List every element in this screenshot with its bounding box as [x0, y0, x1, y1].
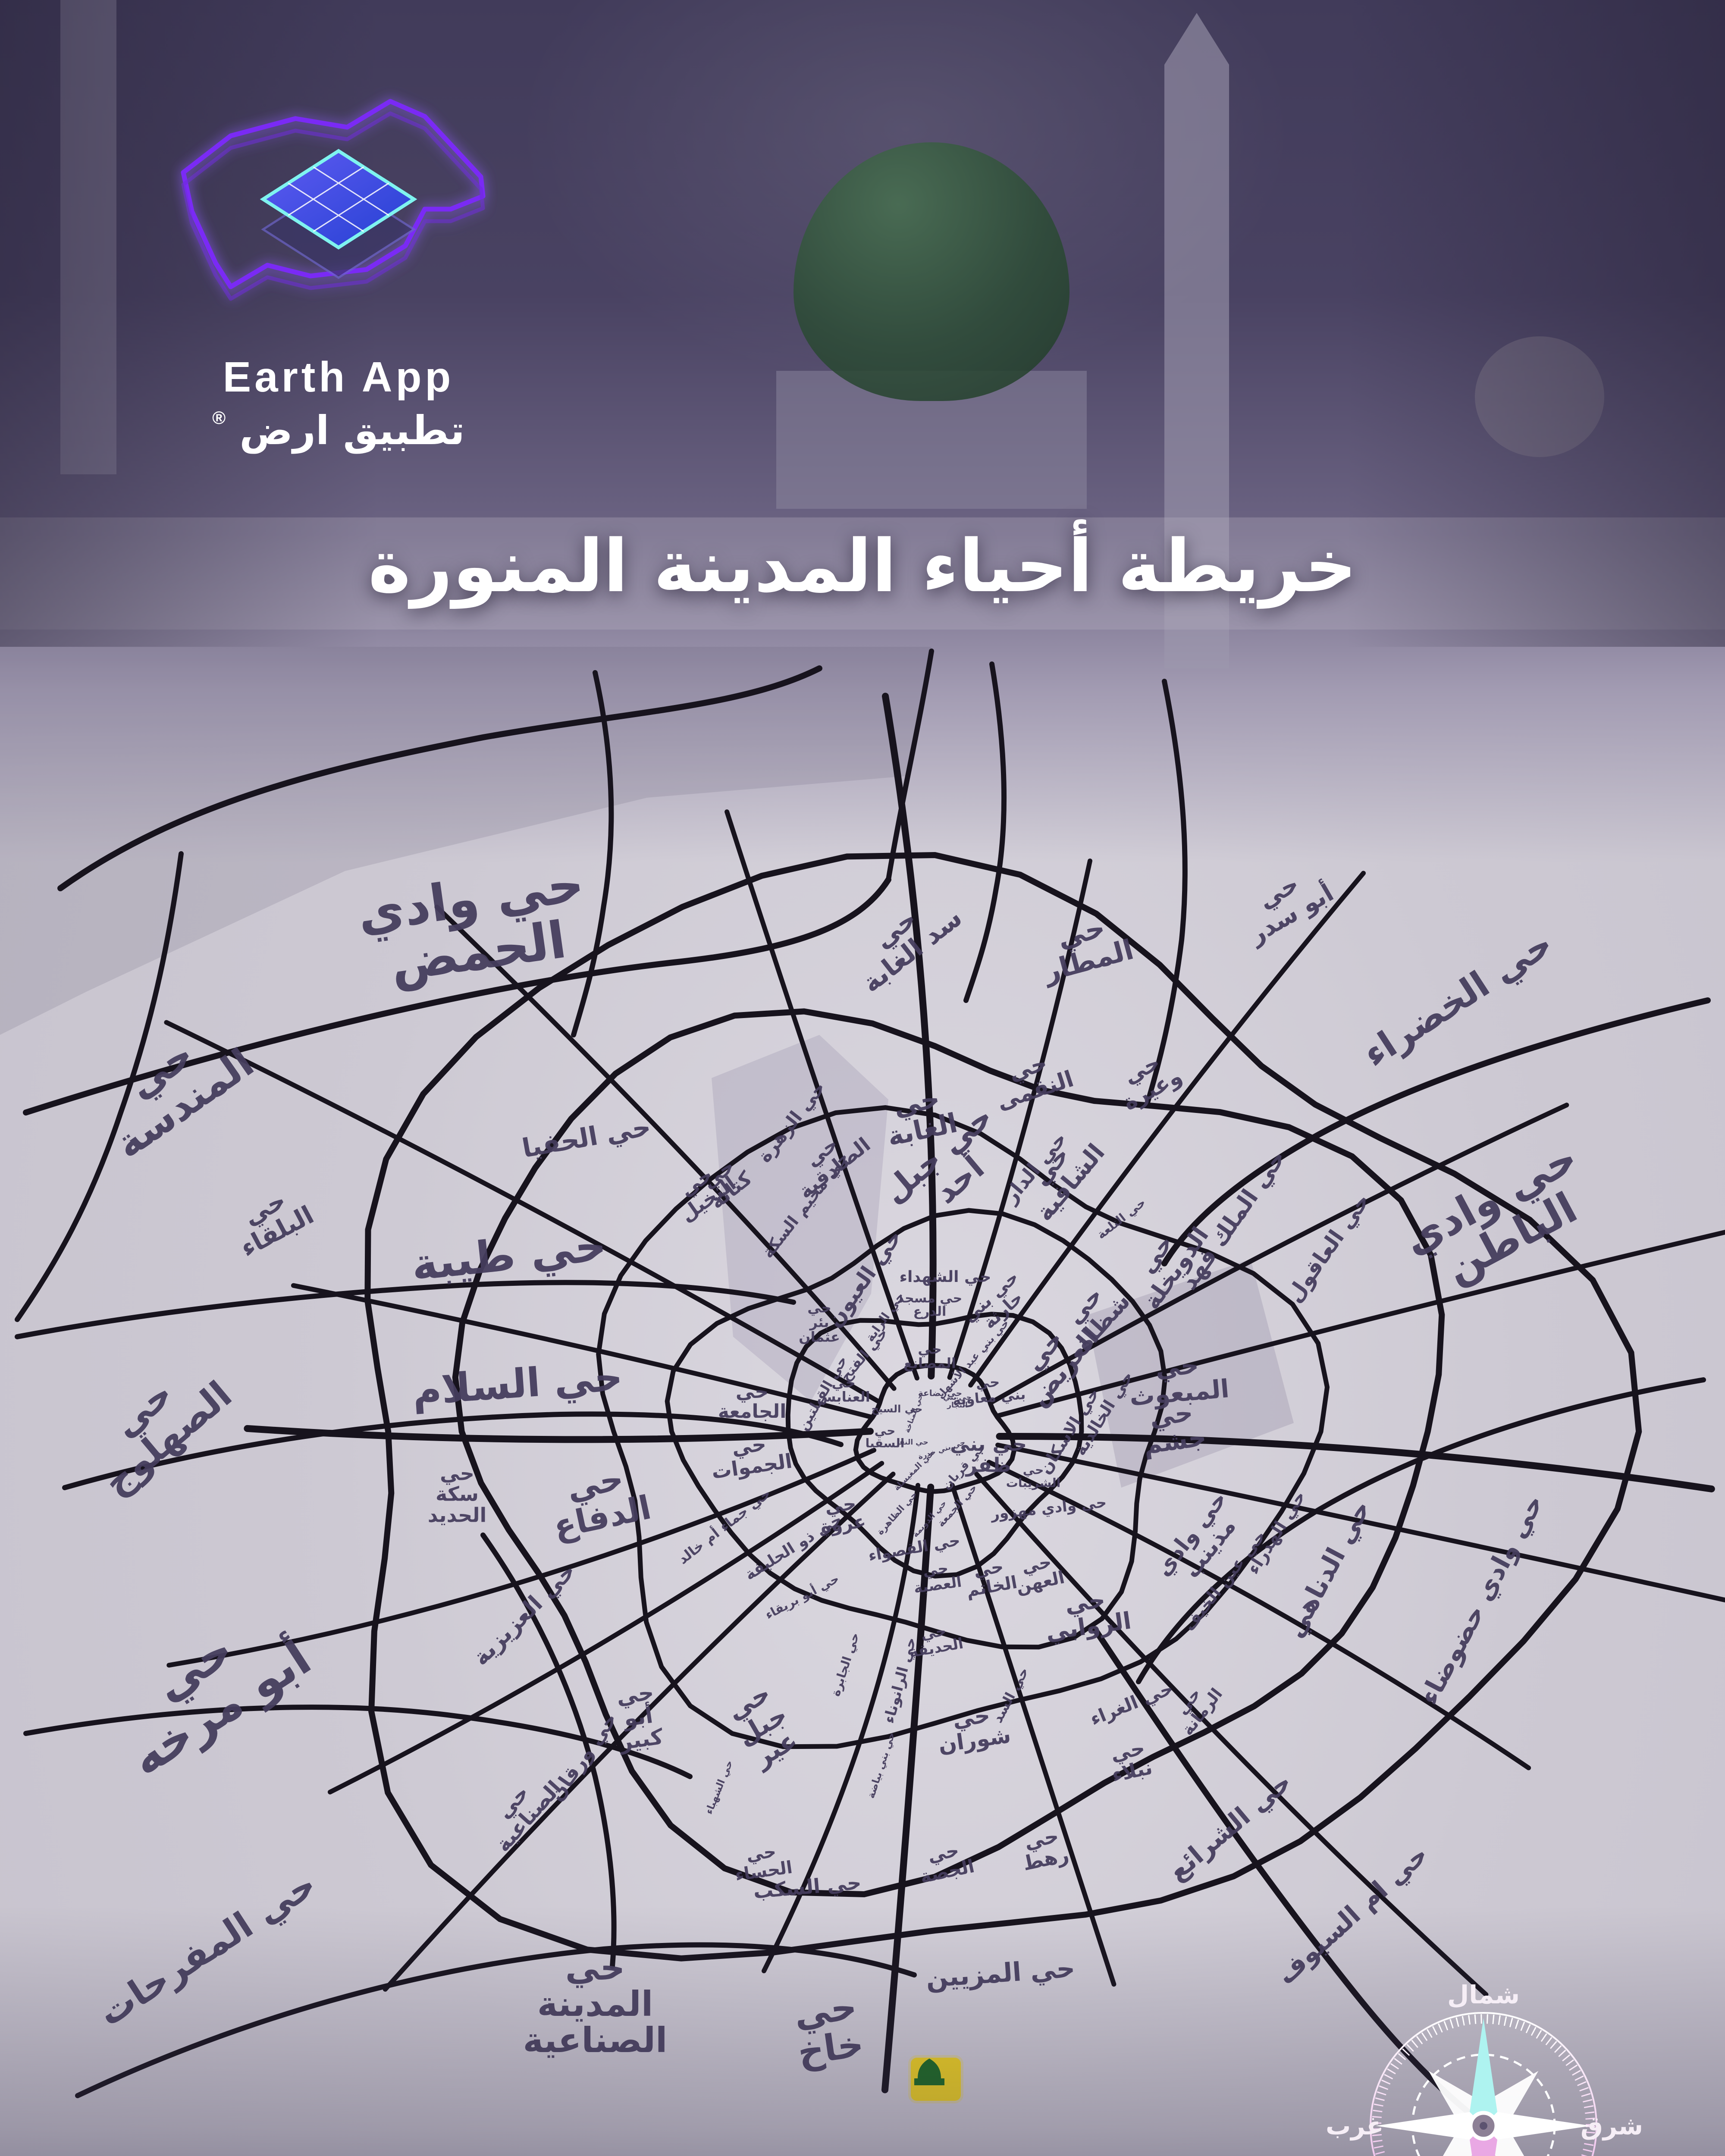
earth-app-logo: Earth App تطبيق ارض ® [112, 69, 565, 454]
compass-label-north: شمال [1447, 1980, 1520, 2009]
compass: شمال جنوب شرق غرب [1341, 1984, 1626, 2156]
logo-subtitle: تطبيق ارض ® [112, 407, 565, 454]
compass-label-east: شرق [1581, 2111, 1643, 2140]
logo-title: Earth App [112, 353, 565, 401]
registered-mark: ® [212, 407, 226, 428]
compass-label-west: غرب [1326, 2111, 1383, 2140]
saudi-map-neon-icon [162, 69, 515, 345]
roads-svg [0, 647, 1725, 2113]
page-title: خريطة أحياء المدينة المنورة [0, 524, 1725, 608]
green-dome-glyph [911, 2058, 948, 2088]
districts-map: حي وادي الحمضحي المندسةحي سد الغابةحي ال… [0, 647, 1725, 2113]
poster-page: Earth App تطبيق ارض ® خريطة أحياء المدين… [0, 0, 1725, 2156]
prophets-mosque-icon [911, 2058, 961, 2101]
